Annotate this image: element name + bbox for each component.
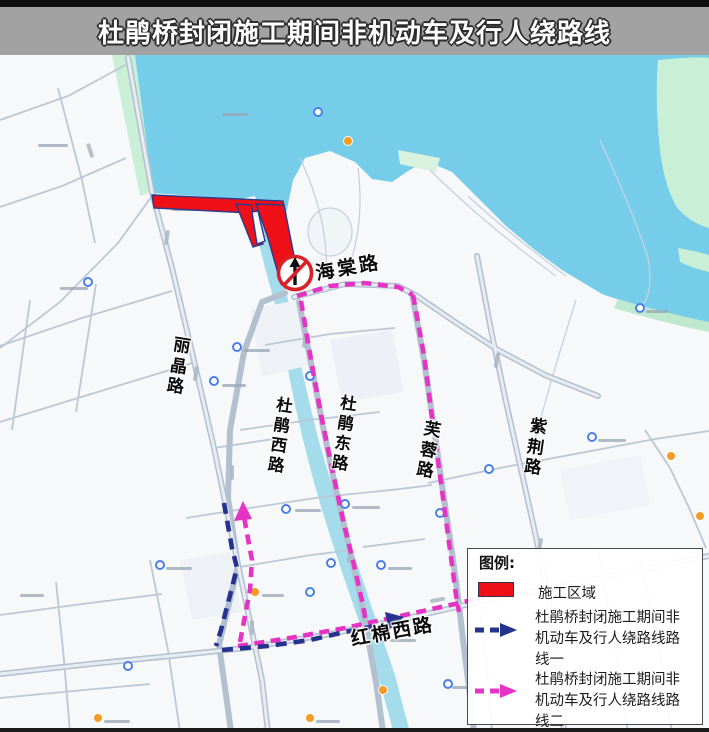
construction-label: 施工区域 bbox=[538, 582, 596, 603]
route1-label-line2: 机动车及行人绕路线路 bbox=[535, 629, 699, 650]
bottom-border bbox=[0, 728, 709, 732]
construction-swatch bbox=[478, 582, 514, 597]
title-bar: 杜鹃桥封闭施工期间非机动车及行人绕路线 bbox=[0, 7, 709, 55]
route2-label-line2: 机动车及行人绕路线路 bbox=[535, 691, 699, 712]
route2-label: 杜鹃桥封闭施工期间非 机动车及行人绕路线路 线二 bbox=[535, 670, 699, 732]
legend-panel: 图例: 施工区域 杜鹃桥封闭施工期间非 机动车及行人绕路线路 线一 杜鹃桥封闭施… bbox=[467, 548, 703, 725]
detour-map-poster: 海棠路 丽晶路 杜鹃西路 杜鹃东路 芙蓉路 紫荆路 红棉西路 图例: 施工区域 … bbox=[0, 0, 709, 732]
route1-label: 杜鹃桥封闭施工期间非 机动车及行人绕路线路 线一 bbox=[535, 608, 699, 671]
top-border bbox=[0, 0, 709, 7]
route2-arrow-icon bbox=[473, 683, 519, 699]
page-title: 杜鹃桥封闭施工期间非机动车及行人绕路线 bbox=[98, 13, 611, 50]
route1-label-line3: 线一 bbox=[535, 650, 699, 671]
legend-heading: 图例: bbox=[479, 552, 515, 573]
route1-arrow-icon bbox=[473, 622, 519, 638]
route1-label-line1: 杜鹃桥封闭施工期间非 bbox=[535, 608, 699, 629]
route2-label-line1: 杜鹃桥封闭施工期间非 bbox=[535, 670, 699, 691]
no-straight-sign-icon bbox=[279, 257, 314, 293]
